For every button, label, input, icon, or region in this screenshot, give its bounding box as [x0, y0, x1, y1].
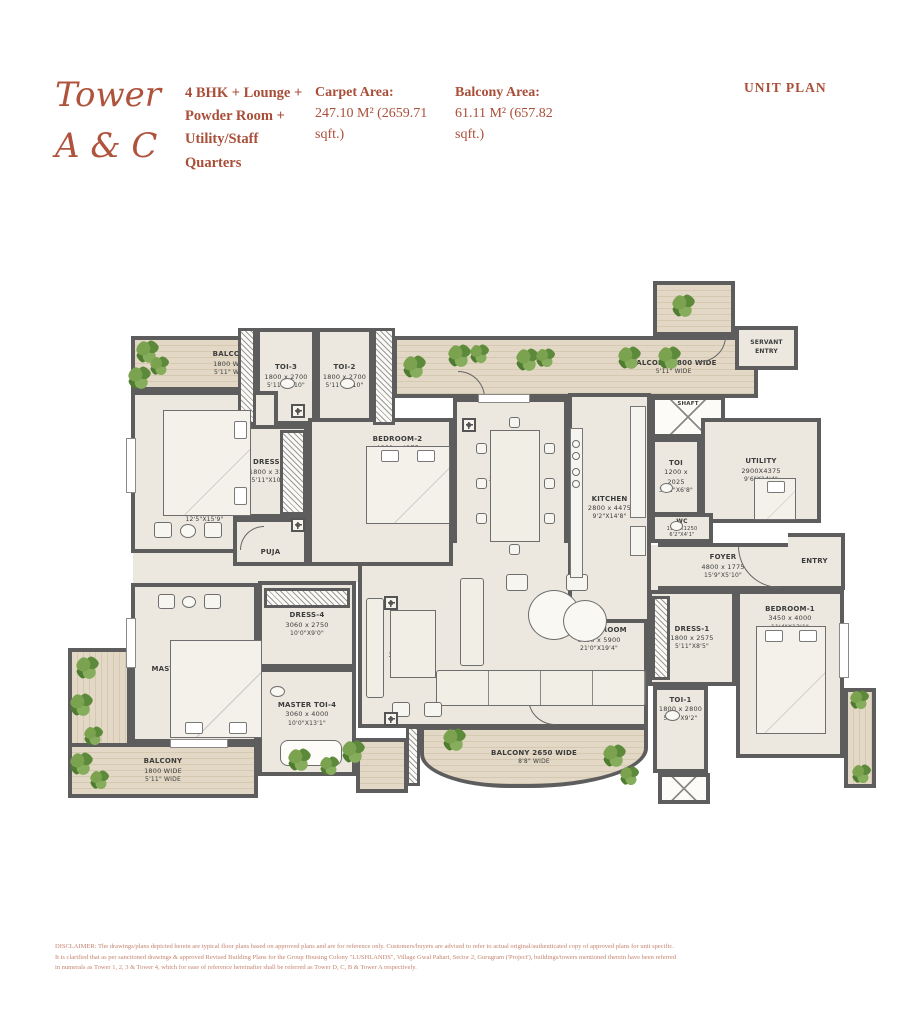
room-toi-1: TOI-11800 x 28005'11"X9'2"	[653, 686, 708, 773]
burner-icon	[572, 480, 580, 488]
chair-icon	[509, 417, 520, 428]
floor-plan: BALCONY1800 WIDE5'11" WIDE BALCONY 1800 …	[58, 278, 858, 813]
column-marker	[462, 418, 476, 432]
disclaimer-line3: in numerals as Tower 1, 2, 3 & Tower 4, …	[55, 963, 853, 974]
fridge-icon	[630, 526, 646, 556]
tower-title-line2: A & C	[55, 121, 185, 172]
wardrobe-hatch	[264, 588, 350, 608]
pillow-icon	[417, 450, 435, 462]
wc-fixture-icon	[270, 686, 285, 697]
chair-icon	[544, 443, 555, 454]
closet-hatch	[373, 328, 395, 425]
plant-icon	[70, 752, 94, 776]
staff-bed-icon	[754, 478, 796, 520]
burner-icon	[572, 468, 580, 476]
bed-icon	[170, 640, 262, 738]
window	[126, 438, 136, 493]
kitchen-counter-icon	[630, 406, 646, 518]
plant-icon	[342, 740, 366, 764]
unit-plan-heading: UNIT PLAN	[744, 80, 827, 96]
side-table-icon	[180, 524, 196, 538]
plant-icon	[150, 356, 170, 376]
armchair-icon	[154, 522, 172, 538]
pillow-icon	[381, 450, 399, 462]
coffee-table-icon	[563, 600, 607, 642]
balcony-area-label: Balcony Area:	[455, 82, 567, 103]
pillow-icon	[767, 481, 785, 493]
armchair-icon	[204, 522, 222, 538]
wc-fixture-icon	[665, 710, 680, 721]
room-servant-entry: SERVANT ENTRY	[735, 326, 798, 370]
column-marker	[384, 596, 398, 610]
sofa-icon	[460, 578, 484, 666]
kitchen-counter-icon	[570, 428, 583, 578]
plant-icon	[672, 294, 696, 318]
plant-icon	[443, 728, 467, 752]
armchair-icon	[158, 594, 175, 609]
plant-icon	[448, 344, 472, 368]
wardrobe-hatch	[652, 596, 670, 680]
wc-fixture-icon	[340, 378, 355, 389]
chair-icon	[476, 443, 487, 454]
sofa-icon	[366, 598, 384, 698]
plant-icon	[320, 756, 340, 776]
carpet-area-label: Carpet Area:	[315, 82, 443, 103]
chair-icon	[476, 478, 487, 489]
dining-table-icon	[490, 430, 540, 542]
wardrobe-hatch	[280, 430, 306, 515]
pillow-icon	[799, 630, 817, 642]
column-marker	[291, 404, 305, 418]
plant-icon	[128, 366, 152, 390]
tower-title-line1: Tower	[55, 70, 185, 121]
pillow-icon	[765, 630, 783, 642]
disclaimer-line1: DISCLAIMER: The drawings/plans depicted …	[55, 942, 853, 953]
pillow-icon	[229, 722, 247, 734]
chair-icon	[509, 544, 520, 555]
side-table-icon	[182, 596, 196, 608]
plant-icon	[658, 346, 682, 370]
plant-icon	[603, 744, 627, 768]
pillow-icon	[234, 487, 247, 505]
chair-icon	[476, 513, 487, 524]
plant-icon	[618, 346, 642, 370]
plant-icon	[84, 726, 104, 746]
room-toi-2: TOI-21800 x 27005'11"X8'10"	[316, 328, 373, 425]
disclaimer: DISCLAIMER: The drawings/plans depicted …	[55, 942, 853, 974]
wc-fixture-icon	[670, 521, 683, 531]
room-toi-servant: TOI1200 x 20253'11"X6'8"	[651, 438, 701, 516]
window	[170, 739, 228, 748]
ledge-hatch	[406, 726, 420, 786]
bed-icon	[366, 446, 450, 524]
window	[126, 618, 136, 668]
burner-icon	[572, 452, 580, 460]
bed-icon	[756, 626, 826, 734]
room-shaft-bottom	[658, 773, 710, 804]
room-entry: ENTRY	[788, 533, 845, 590]
plant-icon	[620, 766, 640, 786]
pillow-icon	[234, 421, 247, 439]
tower-title: Tower A & C	[55, 70, 185, 172]
plant-icon	[403, 355, 427, 379]
sofa-icon	[436, 670, 646, 706]
pillow-icon	[185, 722, 203, 734]
unit-plan-page: Tower A & C 4 BHK + Lounge + Powder Room…	[0, 0, 906, 1024]
plant-icon	[76, 656, 100, 680]
unit-type-description: 4 BHK + Lounge + Powder Room + Utility/S…	[185, 82, 313, 175]
wc-fixture-icon	[280, 378, 295, 389]
carpet-area-value: 247.10 M² (2659.71 sqft.)	[315, 103, 443, 145]
wc-fixture-icon	[660, 483, 673, 493]
column-marker	[291, 518, 305, 532]
chair-icon	[544, 478, 555, 489]
column-marker	[384, 712, 398, 726]
plant-icon	[90, 770, 110, 790]
lounge-table-icon	[390, 610, 436, 678]
burner-icon	[572, 440, 580, 448]
plant-icon	[70, 693, 94, 717]
window	[839, 623, 849, 678]
armchair-icon	[204, 594, 221, 609]
armchair-icon	[424, 702, 442, 717]
armchair-icon	[506, 574, 528, 591]
chair-icon	[544, 513, 555, 524]
plant-icon	[536, 348, 556, 368]
plant-icon	[470, 344, 490, 364]
plant-icon	[852, 764, 872, 784]
balcony-area-block: Balcony Area: 61.11 M² (657.82 sqft.)	[455, 82, 567, 145]
balcony-area-value: 61.11 M² (657.82 sqft.)	[455, 103, 567, 145]
disclaimer-line2: It is clarified that as per sanctioned d…	[55, 953, 853, 964]
carpet-area-block: Carpet Area: 247.10 M² (2659.71 sqft.)	[315, 82, 443, 145]
window	[478, 394, 530, 403]
bed-icon	[163, 410, 251, 516]
plant-icon	[288, 748, 312, 772]
plant-icon	[850, 690, 870, 710]
